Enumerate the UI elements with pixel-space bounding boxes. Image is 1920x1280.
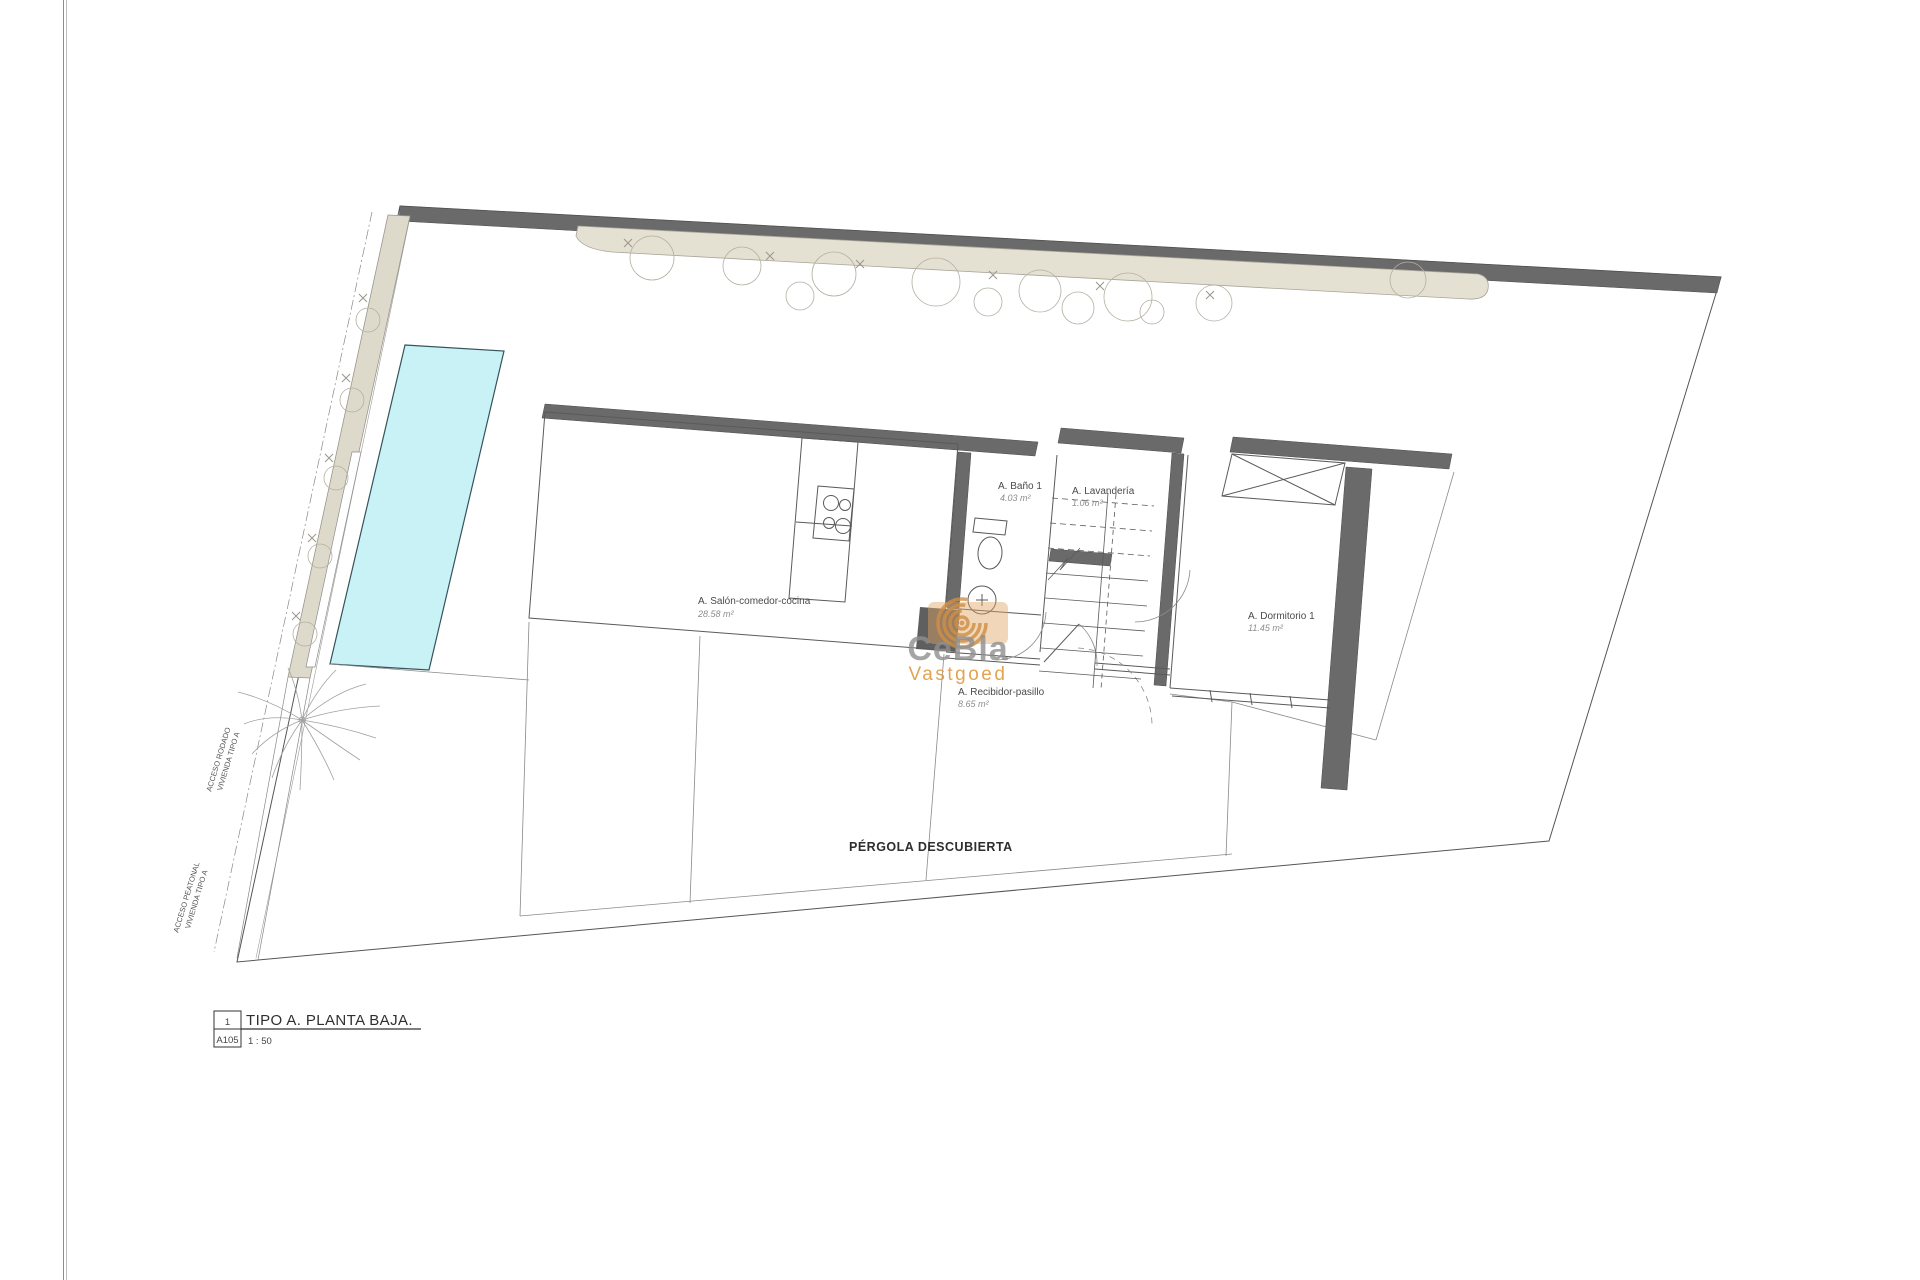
label-access-road: ACCESO RODADO VIVIENDA TIPO A: [204, 724, 242, 795]
area-bath: 4.03 m²: [1000, 493, 1032, 503]
sheet-number: A105: [216, 1035, 238, 1046]
detail-number: 1: [225, 1017, 230, 1028]
label-access-pedestrian: ACCESO PEATONAL VIVIENDA TIPO A: [171, 859, 211, 936]
label-bath: A. Baño 1: [998, 481, 1042, 492]
label-hall: A. Recibidor-pasillo: [958, 687, 1045, 698]
label-laundry: A. Lavandería: [1072, 486, 1135, 497]
area-living: 28.58 m²: [697, 609, 735, 619]
floor-plan-drawing: A. Salón-comedor-cocina 28.58 m² A. Baño…: [0, 0, 1920, 1280]
label-living: A. Salón-comedor-cocina: [698, 596, 811, 607]
area-bedroom: 11.45 m²: [1248, 623, 1284, 633]
label-bedroom: A. Dormitorio 1: [1248, 611, 1315, 622]
drawing-scale: 1 : 50: [248, 1036, 272, 1047]
floor-plan-sheet: A. Salón-comedor-cocina 28.58 m² A. Baño…: [0, 0, 1920, 1280]
area-laundry: 1.06 m²: [1072, 498, 1104, 508]
area-hall: 8.65 m²: [958, 699, 990, 709]
watermark-brand: CeBla: [907, 630, 1008, 668]
access-labels: ACCESO RODADO VIVIENDA TIPO A ACCESO PEA…: [171, 724, 242, 936]
label-pergola: PÉRGOLA DESCUBIERTA: [849, 839, 1013, 854]
watermark-sub: Vastgoed: [909, 664, 1008, 685]
drawing-title: TIPO A. PLANTA BAJA.: [246, 1012, 413, 1029]
title-block: 1 A105 TIPO A. PLANTA BAJA. 1 : 50: [214, 1011, 421, 1047]
